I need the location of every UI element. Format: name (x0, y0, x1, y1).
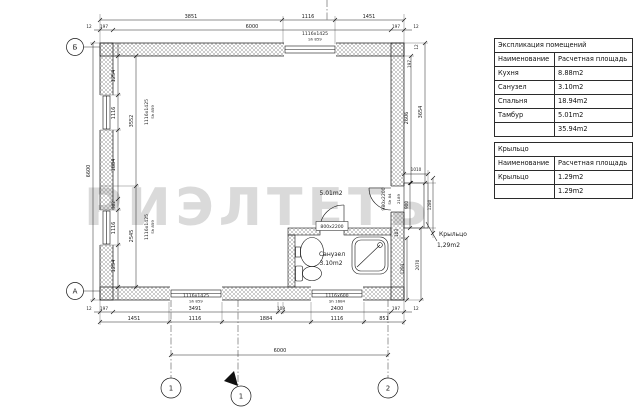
total-area: 35.94m2 (555, 123, 633, 137)
dim-left-1254b: 1254 (111, 260, 117, 273)
window-br-sill: Sh 1684 (329, 299, 346, 304)
porch-table: Крыльцо Наименование Расчетная площадь К… (494, 142, 633, 199)
table-row: Тамбур 5.01m2 (495, 109, 633, 123)
dim-left-3552: 3552 (129, 115, 135, 128)
room-name: Кухня (495, 67, 555, 81)
wall-top (100, 43, 404, 56)
dim-bot1-197r: 197 (392, 306, 400, 311)
dims-bottom: 1116x1425 Sh 859 1116x600 Sh 1684 12 197… (86, 293, 419, 354)
floor-plan-page: РИЭЛТЕТЬ (0, 0, 633, 408)
dim-left-1884: 1884 (111, 159, 117, 172)
dim-top-197-right: 197 (392, 24, 400, 29)
window-bl-sill: Sh 859 (189, 299, 203, 304)
dim-top-197-left: 197 (100, 24, 108, 29)
total-name (495, 185, 555, 199)
dim-bot1-197l: 197 (100, 306, 108, 311)
porch-name-annotation: Крыльцо (439, 231, 467, 238)
tambour-area-label: 5.01m2 (319, 190, 342, 197)
porch-outline (404, 183, 437, 241)
axis-label-b: Б (73, 44, 78, 52)
toilet (296, 266, 322, 281)
dim-top-12-left: 12 (86, 24, 92, 29)
dim-right-1293: 1293 (400, 263, 405, 274)
dim-bot1-2400: 2400 (331, 306, 344, 312)
dim-right-103: 103 (394, 229, 399, 237)
dim-bot2-1451: 1451 (128, 316, 141, 322)
bathroom-fixtures (296, 237, 389, 281)
axis-label-a: А (73, 288, 78, 296)
section-marker-arrow (224, 371, 238, 386)
dim-left-1116b: 1116 (111, 222, 117, 235)
window-lu-sill: Sh 859 (150, 105, 155, 119)
dim-top-3851: 3851 (185, 14, 198, 20)
table-row: Санузел 3.10m2 (495, 81, 633, 95)
dim-top-6000: 6000 (246, 24, 259, 30)
room-name: Тамбур (495, 109, 555, 123)
axis-label-2: 2 (386, 385, 390, 393)
porch-area-annotation: 1,29m2 (437, 242, 460, 249)
room-name: Спальня (495, 95, 555, 109)
explication-col-area: Расчетная площадь (555, 53, 633, 67)
section-label: 1 (239, 393, 243, 401)
witness-lines (90, 14, 436, 325)
dim-right-3654: 3654 (418, 106, 424, 119)
table-total-row: 35.94m2 (495, 123, 633, 137)
table-row: Крыльцо 1.29m2 (495, 171, 633, 185)
bathroom-name-label: Санузел (319, 251, 345, 258)
dim-top-12-right: 12 (413, 24, 419, 29)
exterior-walls (100, 43, 404, 300)
room-area: 3.10m2 (555, 81, 633, 95)
dim-right-2070: 2070 (415, 259, 420, 270)
room-name: Санузел (495, 81, 555, 95)
dim-bot2-1116b: 1116 (331, 316, 344, 322)
dim-right-2606: 2606 (404, 112, 410, 125)
dim-top-1451: 1451 (363, 14, 376, 20)
explication-title: Экспликация помещений (495, 39, 633, 53)
total-area: 1.29m2 (555, 185, 633, 199)
wall-right (391, 43, 404, 300)
total-name (495, 123, 555, 137)
bathroom-area-label: 3.10m2 (319, 260, 342, 267)
table-row: Спальня 18.94m2 (495, 95, 633, 109)
bathroom-door-size: 800x2200 (320, 224, 343, 230)
dim-bot2-1116a: 1116 (189, 316, 202, 322)
porch-table-title: Крыльцо (495, 143, 633, 157)
entry-door-offset-dim: 2189 (396, 194, 401, 204)
porch-col-area: Расчетная площадь (555, 157, 633, 171)
dim-bot2-851: 851 (379, 316, 389, 322)
table-row: Кухня 8.88m2 (495, 67, 633, 81)
dim-left-1254a: 1254 (111, 70, 117, 83)
room-area: 5.01m2 (555, 109, 633, 123)
entry-door-sill: Sh 84 (387, 193, 392, 205)
dims-left: 6600 1254 1116 1884 302 1116 1254 3552 2… (86, 70, 155, 273)
dim-bot1-109: 109 (277, 306, 285, 311)
dim-porch-900: 900 (404, 201, 409, 209)
dim-bot1-12l: 12 (86, 306, 92, 311)
room-area: 8.88m2 (555, 67, 633, 81)
dim-top-1116: 1116 (302, 14, 315, 20)
dim-bot1-3491: 3491 (189, 306, 202, 312)
window-top-sill: Sh 859 (308, 37, 322, 42)
dim-bottom-6000: 6000 (274, 348, 287, 354)
axis-label-1: 1 (169, 385, 173, 393)
dim-right-197: 197 (407, 60, 412, 68)
room-area: 18.94m2 (555, 95, 633, 109)
dim-left-302: 302 (111, 201, 116, 209)
porch-col-name: Наименование (495, 157, 555, 171)
room-area: 1.29m2 (555, 171, 633, 185)
dim-right-12: 12 (414, 44, 419, 50)
window-top (284, 42, 336, 56)
dim-porch-1010: 1010 (411, 167, 422, 172)
table-total-row: 1.29m2 (495, 185, 633, 199)
dim-left-1116a: 1116 (111, 107, 117, 120)
dims-top: 3851 1116 1451 12 197 6000 197 12 1116x1… (86, 14, 419, 42)
room-name: Крыльцо (495, 171, 555, 185)
explication-col-name: Наименование (495, 53, 555, 67)
explication-table: Экспликация помещений Наименование Расче… (494, 38, 633, 137)
dim-left-6600: 6600 (86, 165, 92, 178)
dim-left-2545: 2545 (129, 230, 135, 243)
dim-bot2-1884: 1884 (260, 316, 273, 322)
window-ll-sill: Sh 859 (150, 220, 155, 234)
dim-bot1-12r: 12 (413, 306, 419, 311)
dim-porch-1280: 1280 (427, 199, 432, 210)
shower-cabin (352, 237, 388, 274)
